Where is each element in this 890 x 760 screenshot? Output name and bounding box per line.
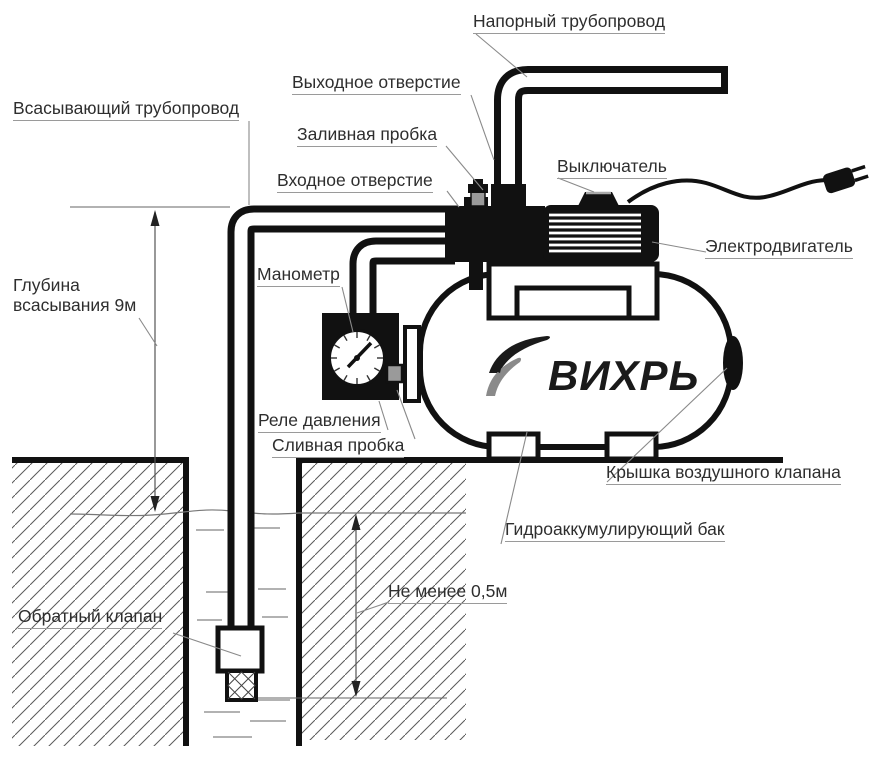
strainer xyxy=(227,671,256,700)
tank-flange xyxy=(405,327,419,401)
check-valve xyxy=(218,628,262,671)
label-manometer: Манометр xyxy=(257,265,340,287)
brand-text: ВИХРЬ xyxy=(548,352,699,399)
label-suction-depth: Глубина всасывания 9м xyxy=(13,276,136,316)
label-drain-plug: Сливная пробка xyxy=(272,436,404,458)
pump-tank-stub xyxy=(469,260,483,290)
switch-button xyxy=(578,192,619,206)
motor xyxy=(543,192,659,262)
pump-body xyxy=(445,179,553,262)
label-inlet: Входное отверстие xyxy=(277,171,433,193)
label-air-valve-cap: Крышка воздушного клапана xyxy=(606,463,841,485)
tank-foot xyxy=(489,434,538,459)
label-outlet: Выходное отверстие xyxy=(292,73,461,95)
label-motor: Электродвигатель xyxy=(705,237,853,259)
pump-station-diagram: ВИХРЬ xyxy=(0,0,890,760)
label-suction-pipe: Всасывающий трубопровод xyxy=(13,99,239,121)
power-cord xyxy=(628,180,826,202)
label-min-height: Не менее 0,5м xyxy=(388,582,507,604)
power-plug-icon xyxy=(822,162,870,195)
pump-bracket xyxy=(489,264,657,318)
label-filler-plug: Заливная пробка xyxy=(297,125,437,147)
air-valve-cap xyxy=(723,336,743,390)
label-switch: Выключатель xyxy=(557,157,667,179)
suction-depth-line2: всасывания 9м xyxy=(13,296,136,316)
tank-foot xyxy=(607,434,656,459)
soil-hatch-left xyxy=(12,463,183,746)
label-pressure-pipe: Напорный трубопровод xyxy=(473,12,665,34)
label-check-valve: Обратный клапан xyxy=(18,607,162,629)
manometer-dial xyxy=(330,331,385,386)
label-pressure-relay: Реле давления xyxy=(258,411,381,433)
pressure-pipe xyxy=(508,80,728,212)
suction-depth-line1: Глубина xyxy=(13,276,136,296)
filler-plug-cap xyxy=(468,179,488,206)
label-tank: Гидроаккумулирующий бак xyxy=(505,520,725,542)
